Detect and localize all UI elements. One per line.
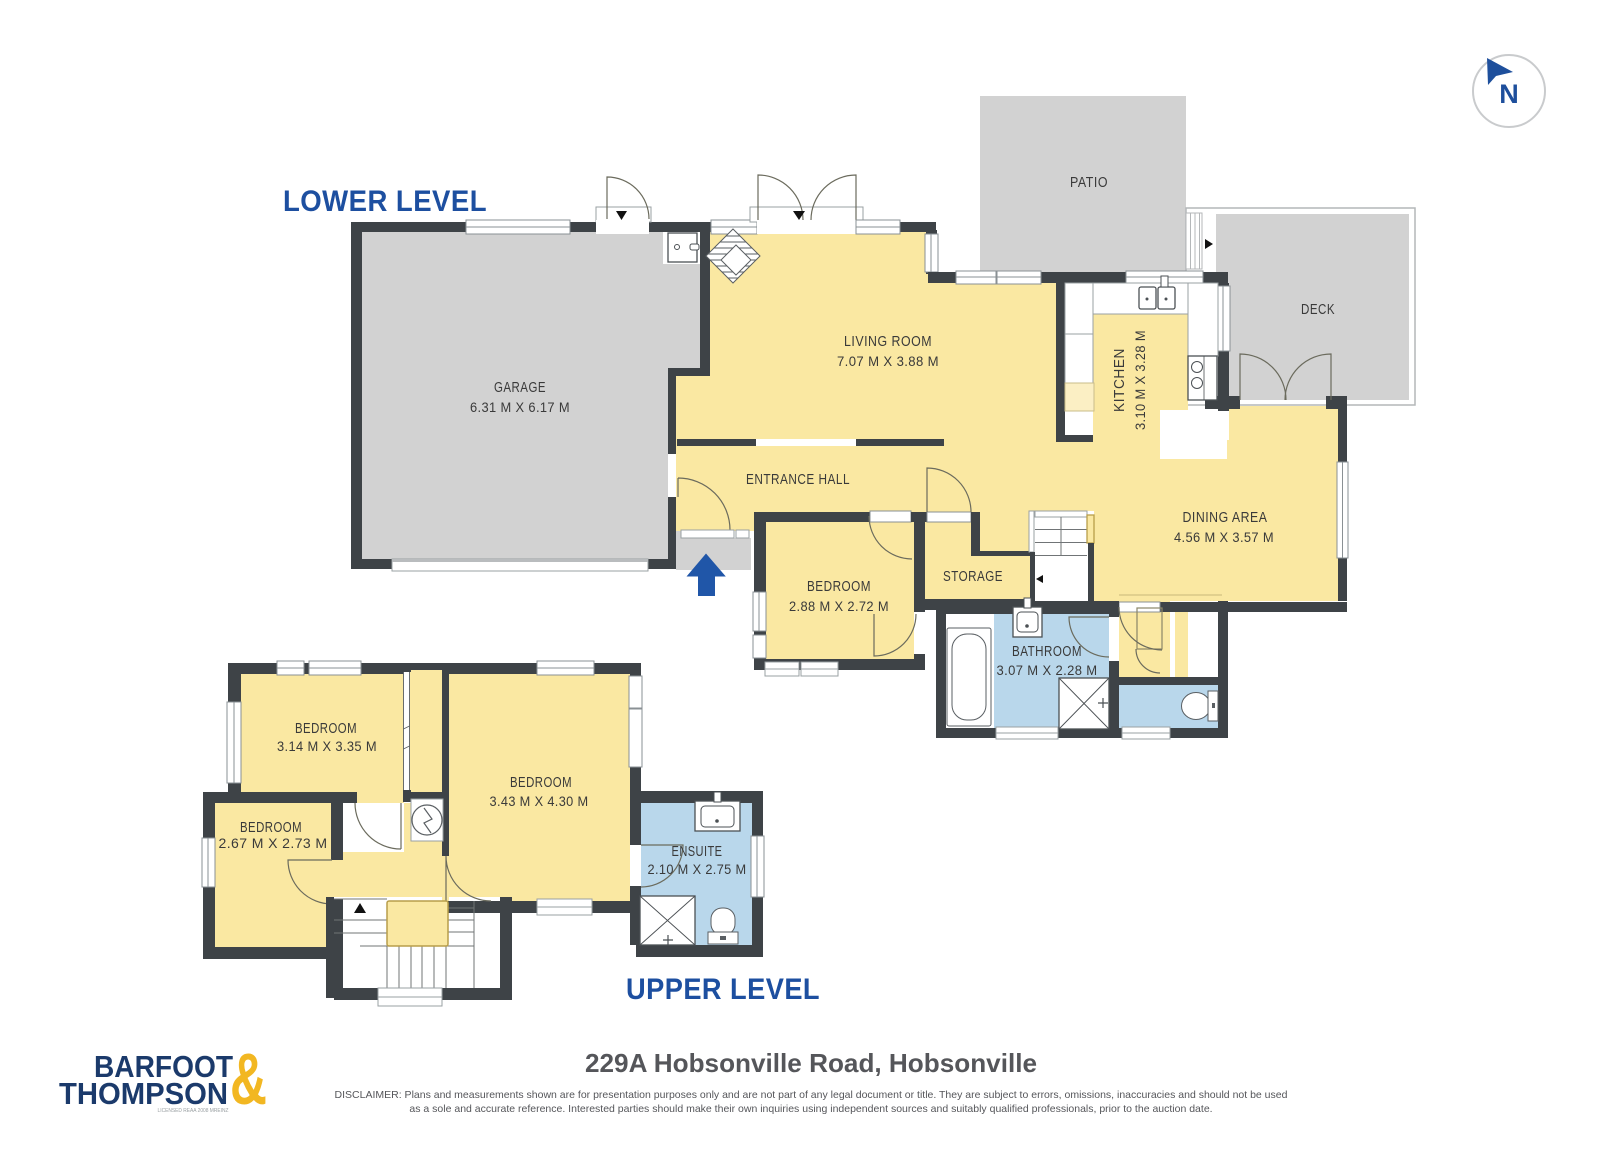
svg-text:BEDROOM: BEDROOM — [510, 775, 572, 791]
svg-text:2.67 M X 2.73 M: 2.67 M X 2.73 M — [219, 835, 328, 851]
svg-text:GARAGE: GARAGE — [494, 380, 546, 396]
svg-text:as a sole and accurate referen: as a sole and accurate reference. Intere… — [409, 1103, 1212, 1115]
svg-text:&: & — [230, 1040, 267, 1120]
svg-text:ENTRANCE HALL: ENTRANCE HALL — [746, 472, 850, 488]
svg-text:DISCLAIMER: Plans and measurem: DISCLAIMER: Plans and measurements shown… — [335, 1089, 1288, 1101]
svg-text:BEDROOM: BEDROOM — [807, 579, 871, 595]
svg-text:LICENSED REAA 2008 MREINZ: LICENSED REAA 2008 MREINZ — [158, 1108, 230, 1114]
svg-text:DECK: DECK — [1301, 302, 1335, 318]
svg-text:DINING AREA: DINING AREA — [1183, 510, 1268, 526]
svg-text:N: N — [1499, 79, 1519, 109]
svg-text:KITCHEN: KITCHEN — [1112, 348, 1128, 412]
svg-text:229A Hobsonville Road, Hobsonv: 229A Hobsonville Road, Hobsonville — [585, 1048, 1037, 1078]
svg-text:STORAGE: STORAGE — [943, 569, 1003, 585]
svg-text:2.88 M X 2.72 M: 2.88 M X 2.72 M — [789, 598, 889, 614]
svg-text:LIVING ROOM: LIVING ROOM — [844, 334, 932, 350]
svg-text:LOWER LEVEL: LOWER LEVEL — [283, 185, 487, 218]
svg-text:PATIO: PATIO — [1070, 175, 1108, 191]
svg-text:2.10 M X 2.75 M: 2.10 M X 2.75 M — [648, 861, 747, 877]
svg-text:BEDROOM: BEDROOM — [240, 820, 302, 836]
svg-text:4.56 M X 3.57 M: 4.56 M X 3.57 M — [1174, 529, 1274, 545]
svg-text:BEDROOM: BEDROOM — [295, 721, 357, 737]
svg-text:ENSUITE: ENSUITE — [672, 844, 723, 860]
svg-text:THOMPSON: THOMPSON — [59, 1076, 228, 1111]
svg-text:3.10 M X 3.28 M: 3.10 M X 3.28 M — [1132, 330, 1148, 430]
svg-text:3.43 M X 4.30 M: 3.43 M X 4.30 M — [490, 793, 589, 809]
svg-text:6.31 M X 6.17 M: 6.31 M X 6.17 M — [470, 399, 570, 415]
svg-text:UPPER LEVEL: UPPER LEVEL — [626, 973, 820, 1006]
svg-text:BATHROOM: BATHROOM — [1012, 644, 1082, 660]
svg-text:3.07 M X 2.28 M: 3.07 M X 2.28 M — [997, 662, 1098, 678]
svg-text:3.14 M X 3.35 M: 3.14 M X 3.35 M — [277, 738, 377, 754]
svg-text:7.07 M X 3.88 M: 7.07 M X 3.88 M — [837, 353, 939, 369]
